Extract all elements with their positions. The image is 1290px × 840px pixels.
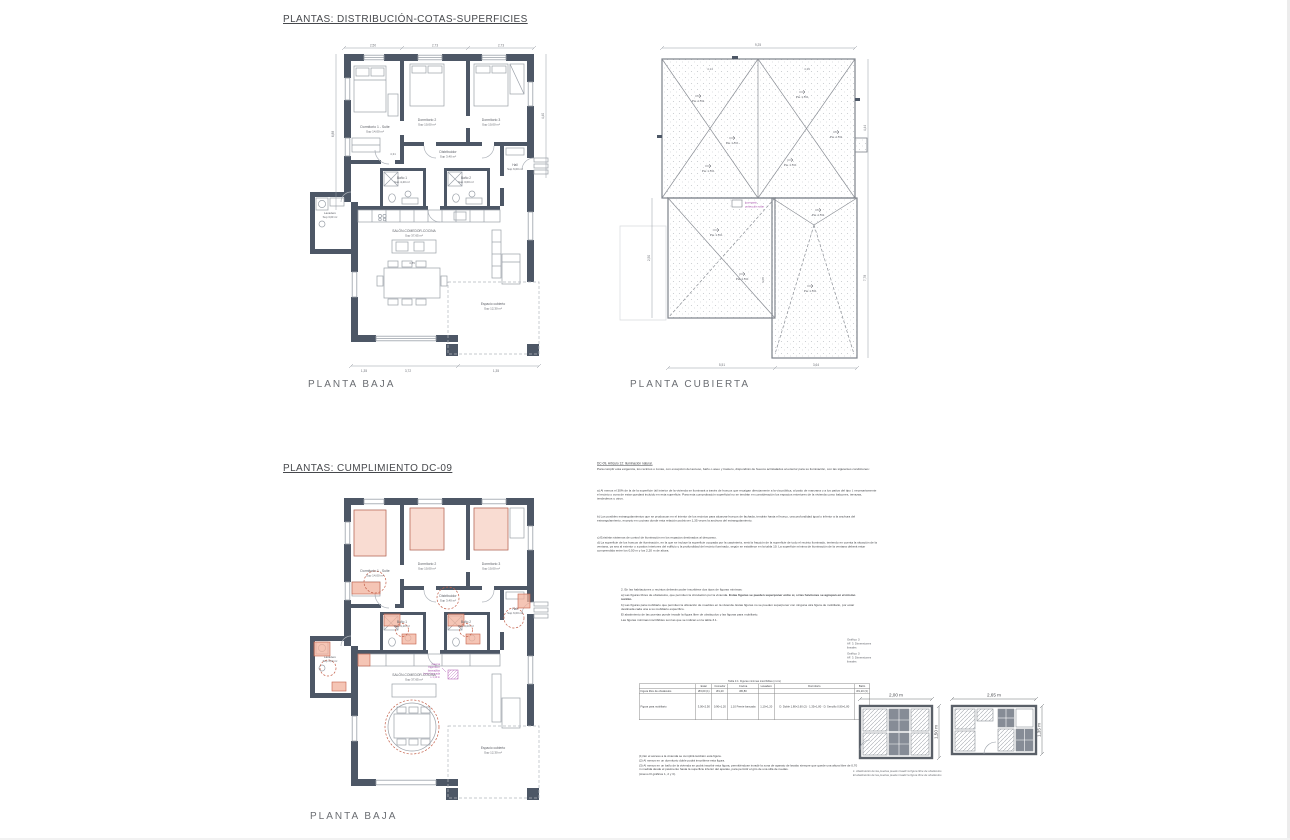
svg-text:Dormitorio 2: Dormitorio 2 <box>418 118 437 122</box>
svg-text:SALÓN-COMEDOR-COCINA: SALÓN-COMEDOR-COCINA <box>392 228 436 233</box>
svg-text:Sup 3,00 m²: Sup 3,00 m² <box>458 180 474 184</box>
planta-baja-dc09-label: PLANTA BAJA <box>310 811 397 822</box>
note-3: (3) Al menos en un baño de la vivienda s… <box>639 764 859 772</box>
svg-text:2,73: 2,73 <box>498 44 504 48</box>
svg-text:Espacio cubierto: Espacio cubierto <box>481 746 506 750</box>
svg-text:Pte 1.5%: Pte 1.5% <box>692 99 705 103</box>
svg-text:SALÓN-COMEDOR-COCINA: SALÓN-COMEDOR-COCINA <box>392 672 436 677</box>
svg-text:Sup 10,00 m²: Sup 10,00 m² <box>482 567 500 571</box>
partition-walls <box>351 61 531 210</box>
dc09-paragraph-a: a) Al menos el 30% de la de la superfici… <box>597 489 877 503</box>
svg-text:1,35: 1,35 <box>361 369 367 373</box>
svg-text:Sup 4,40 m²: Sup 4,40 m² <box>394 624 410 628</box>
svg-text:Sup 3,00 m²: Sup 3,00 m² <box>323 659 338 663</box>
diagram-caption-2: El abatimiento de las puertas puede inva… <box>853 774 1028 778</box>
svg-text:Sup 12,30 m²: Sup 12,30 m² <box>484 307 502 311</box>
svg-text:Pte 1.5%: Pte 1.5% <box>726 141 739 145</box>
svg-text:4,44: 4,44 <box>863 125 867 131</box>
svg-text:Pte 1.5%: Pte 1.5% <box>812 213 825 217</box>
svg-text:9,25: 9,25 <box>755 43 761 47</box>
svg-text:Sup 6,00 m²: Sup 6,00 m² <box>507 167 523 171</box>
svg-text:7,78: 7,78 <box>863 275 867 281</box>
svg-text:2,50: 2,50 <box>370 44 376 48</box>
svg-text:Sup 12,30 m²: Sup 12,30 m² <box>484 751 502 755</box>
svg-text:Lavadero: Lavadero <box>324 655 336 659</box>
svg-text:Dormitorio 2: Dormitorio 2 <box>418 562 437 566</box>
svg-text:Sup 10,00 m²: Sup 10,00 m² <box>418 567 436 571</box>
svg-text:Pte 1.5%: Pte 1.5% <box>736 277 749 281</box>
svg-text:Dormitorio 1 - Suite: Dormitorio 1 - Suite <box>360 569 389 573</box>
svg-text:5,51: 5,51 <box>719 363 725 367</box>
svg-text:Pte 1.5%: Pte 1.5% <box>710 233 723 237</box>
svg-text:Distribuidor: Distribuidor <box>439 594 457 598</box>
svg-text:lucernario: lucernario <box>745 201 757 205</box>
dc09-intro: Para cumplir esta exigencia, los recinto… <box>597 468 877 472</box>
svg-text:Sup 37,65 m²: Sup 37,65 m² <box>405 678 423 682</box>
dc09-text-column: DC-09, Artículo 12: Iluminación natural.… <box>597 462 880 814</box>
bath-diagram-2: 2,65 m 1,35 m <box>944 690 1048 770</box>
svg-text:2,00 m: 2,00 m <box>889 693 903 698</box>
svg-text:4,29: 4,29 <box>804 67 810 71</box>
svg-text:Pte 1.5%: Pte 1.5% <box>830 135 843 139</box>
table-3-1: Tabla 3.1: Figuras mínimas inscribibles … <box>639 680 870 720</box>
svg-text:3,72: 3,72 <box>405 369 411 373</box>
svg-text:Pte 1.5%: Pte 1.5% <box>804 289 817 293</box>
svg-text:Sup 14,00 m²: Sup 14,00 m² <box>366 574 384 578</box>
dc09-section2: 2. En las habitaciones o recintos deberá… <box>621 588 859 624</box>
svg-text:Sup 3,00 m²: Sup 3,00 m² <box>458 624 474 628</box>
drawing-sheet: PLANTAS: DISTRIBUCIÓN-COTAS-SUPERFICIES … <box>0 0 1290 840</box>
planta-cubierta-plan: Pte 1.5% Pte 1.5% Pte 1.5% Pte 1.5% Pte … <box>612 40 902 380</box>
note-2: (2) Al menos en un dormitorio doble podr… <box>639 760 859 764</box>
sec2-line3: b) Las figuras para mobiliario que permi… <box>621 603 859 611</box>
svg-text:4,40: 4,40 <box>541 113 545 119</box>
svg-text:Dormitorio 1 - Suite: Dormitorio 1 - Suite <box>360 125 389 129</box>
planta-baja-dc09-plan: reserva frigorífico / lavavajillas frent… <box>296 486 586 826</box>
svg-text:Pte 1.5%: Pte 1.5% <box>784 163 797 167</box>
svg-text:1,50 m: 1,50 m <box>934 725 939 739</box>
doors <box>341 146 534 222</box>
svg-text:6,08: 6,08 <box>761 277 765 283</box>
svg-text:2,50: 2,50 <box>647 255 651 261</box>
dc09-intro-block: DC-09, Artículo 12: Iluminación natural.… <box>597 462 877 473</box>
svg-text:6,88: 6,88 <box>331 131 335 137</box>
svg-text:Distribuidor: Distribuidor <box>439 150 457 154</box>
svg-text:Sup 14,00 m²: Sup 14,00 m² <box>366 130 384 134</box>
svg-text:Pte 1.5%: Pte 1.5% <box>702 169 715 173</box>
sec2-line5: Las figuras mínimas inscribibles son las… <box>621 619 859 623</box>
svg-text:Sup 37,65 m²: Sup 37,65 m² <box>405 234 423 238</box>
bath-diagram-1: 2,00 m 1,50 m <box>850 690 946 770</box>
svg-text:1,35 m: 1,35 m <box>1037 723 1042 737</box>
svg-text:Sup 10,00 m²: Sup 10,00 m² <box>418 123 436 127</box>
sec2-line2: a) Las figuras libres de obstáculos, que… <box>621 594 859 602</box>
svg-text:Sup 10,00 m²: Sup 10,00 m² <box>482 123 500 127</box>
svg-text:Espacio cubierto: Espacio cubierto <box>481 302 506 306</box>
dc09-paragraph-d: d) La superficie de los huecos de ilumin… <box>597 541 877 555</box>
svg-text:2,73: 2,73 <box>432 44 438 48</box>
svg-text:Sup 3,40 m²: Sup 3,40 m² <box>440 599 456 603</box>
note-1: (1) En el acceso a la vivienda se cumpli… <box>639 755 859 759</box>
dc09-heading: DC-09, Artículo 12: Iluminación natural. <box>597 462 877 466</box>
svg-text:4,31: 4,31 <box>390 152 396 156</box>
svg-text:Sup 3,40 m²: Sup 3,40 m² <box>440 155 456 159</box>
note-4: (Anexo III gráficos 1, 2 y 3). <box>639 773 859 777</box>
diagram-captions: 1. Abatimiento de las puertas puede inva… <box>853 770 1033 778</box>
table-row: Figura para mobiliario 3,00×2,500,90×1,2… <box>639 694 870 720</box>
svg-text:3,64: 3,64 <box>813 363 819 367</box>
svg-text:1,35: 1,35 <box>493 369 499 373</box>
ground-outline <box>620 226 666 320</box>
planta-cubierta-label: PLANTA CUBIERTA <box>630 379 750 390</box>
svg-text:Lavadero: Lavadero <box>324 211 336 215</box>
svg-text:Pte 1.5%: Pte 1.5% <box>796 95 809 99</box>
svg-text:Sup 6,00 m²: Sup 6,00 m² <box>507 611 523 615</box>
svg-text:Sup 3,00 m²: Sup 3,00 m² <box>323 215 338 219</box>
svg-text:2,65 m: 2,65 m <box>987 693 1001 698</box>
planta-baja-plan: Dormitorio 1 - SuiteSup 14,00 m² Dormito… <box>296 42 586 382</box>
svg-text:protección solar: protección solar <box>745 205 764 209</box>
terrace-outline <box>448 726 539 798</box>
svg-text:4,85: 4,85 <box>409 261 415 265</box>
dc09-notes: (1) En el acceso a la vivienda se cumpli… <box>639 755 859 777</box>
sec2-line4: El abatimiento de las puertas puede inva… <box>621 613 859 617</box>
svg-text:Dormitorio 3: Dormitorio 3 <box>482 118 501 122</box>
svg-text:Dormitorio 3: Dormitorio 3 <box>482 562 501 566</box>
planta-baja-label: PLANTA BAJA <box>308 379 395 390</box>
terrace-outline <box>448 282 539 354</box>
dc09-paragraph-b: b) Los posibles estrangulamientos que se… <box>597 515 877 525</box>
sheet1-title: PLANTAS: DISTRIBUCIÓN-COTAS-SUPERFICIES <box>283 14 528 25</box>
sec2-line1: 2. En las habitaciones o recintos deberá… <box>621 588 859 592</box>
sheet2-title: PLANTAS: CUMPLIMIENTO DC-09 <box>283 463 452 474</box>
grafico-labels: Gráfico 3 AF. 3. Dimensiones lineales Gr… <box>847 638 880 664</box>
svg-text:4,14: 4,14 <box>707 67 713 71</box>
dc09-free-figures <box>320 571 524 754</box>
svg-text:Sup 4,40 m²: Sup 4,40 m² <box>394 180 410 184</box>
